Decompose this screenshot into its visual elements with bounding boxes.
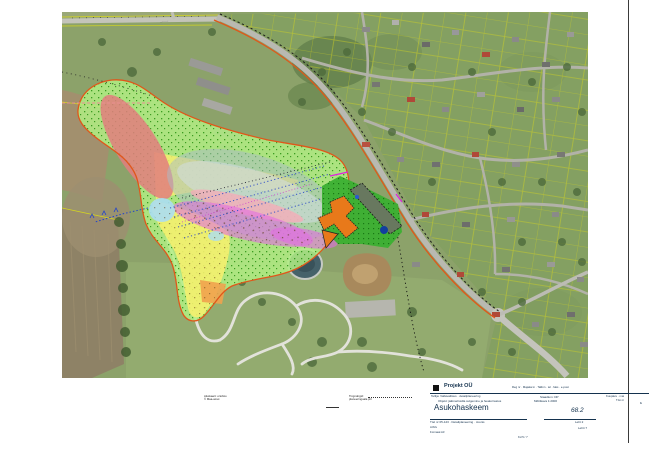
company-name: Projekt OÜ bbox=[444, 383, 472, 389]
map-source-line2: © Maa-amet bbox=[204, 398, 227, 401]
blue-structure bbox=[380, 226, 388, 234]
volume-note: Kd 5 / 7 bbox=[518, 436, 528, 439]
legend-line2: planeeringuala piir bbox=[349, 398, 372, 401]
parking-area bbox=[345, 299, 396, 318]
sheet-number: 68.2 bbox=[571, 407, 584, 414]
map-source-note: Aluskaart: ortofoto © Maa-amet bbox=[204, 395, 227, 402]
title-block-rule-2b bbox=[544, 419, 596, 420]
drawing-sheet: ·········· Aluskaart: ortofoto © Maa-ame… bbox=[0, 0, 650, 459]
legend-dotted-sample bbox=[368, 397, 412, 398]
page-label: lk bbox=[640, 402, 642, 405]
legend-line-sample bbox=[326, 407, 339, 408]
worknr-row: Töö nr 05-123 · Detailplaneering · Jooni… bbox=[430, 421, 485, 425]
archive-row: Arhiiv bbox=[430, 426, 437, 429]
top-road bbox=[62, 19, 220, 21]
sheets-total-row: Lehti 7 bbox=[578, 427, 587, 431]
title-block: Projekt OÜ Reg nr · Majaka tn · Tallinn … bbox=[430, 382, 650, 444]
drawing-title: Asukohaskeem bbox=[434, 403, 489, 412]
format-row: Formaat A3 bbox=[430, 431, 444, 434]
company-contact: Reg nr · Majaka tn · Tallinn · tel · fak… bbox=[512, 386, 569, 389]
map-canvas: ·········· bbox=[62, 12, 588, 378]
sheet-row: Leht 2 bbox=[575, 421, 583, 425]
company-logo bbox=[433, 385, 439, 391]
scale-row: Mõõtkava 1:2000 bbox=[534, 400, 557, 404]
worknr-label: Töö nr bbox=[616, 399, 624, 402]
sheet-frame-line bbox=[628, 0, 629, 443]
bare-ground bbox=[343, 253, 392, 296]
